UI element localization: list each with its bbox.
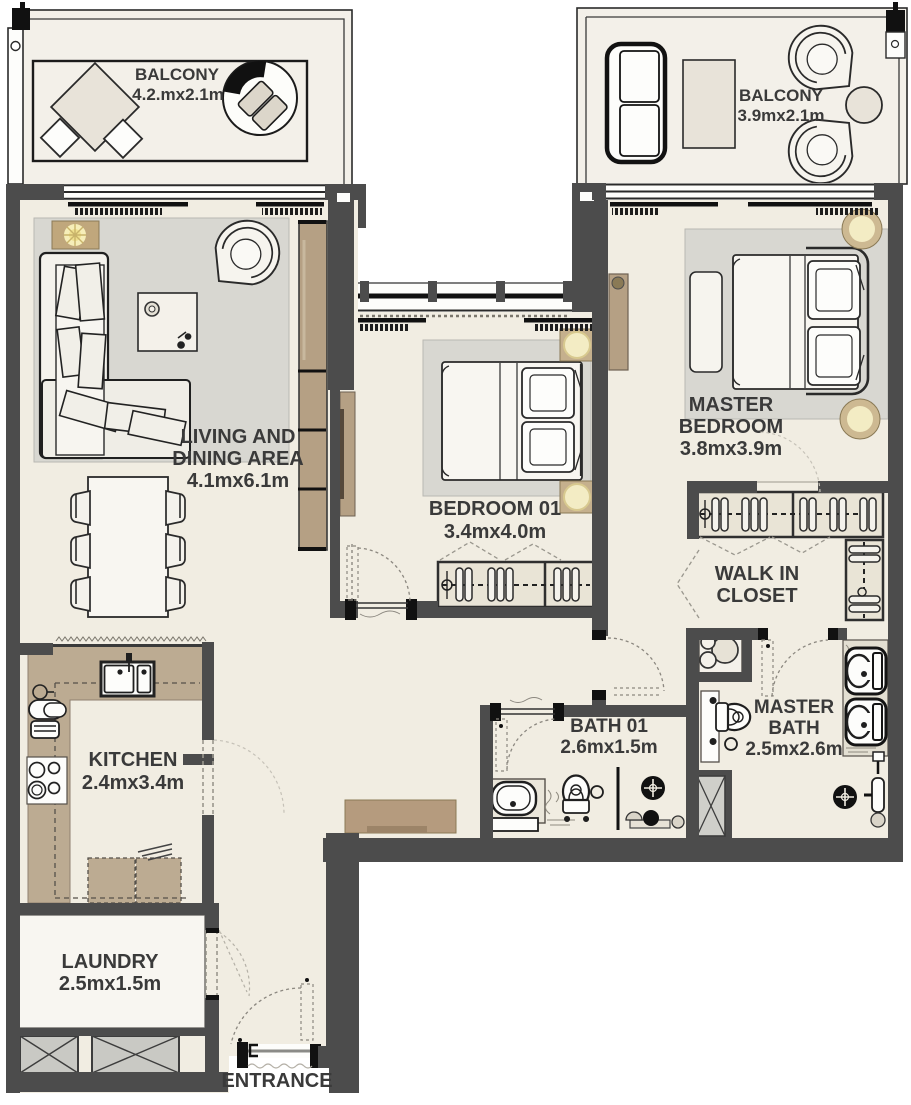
svg-text:3.9mx2.1m: 3.9mx2.1m bbox=[738, 106, 825, 125]
svg-text:WALK IN: WALK IN bbox=[715, 563, 799, 585]
svg-text:3.4mx4.0m: 3.4mx4.0m bbox=[444, 521, 546, 543]
svg-text:LIVING AND: LIVING AND bbox=[181, 426, 296, 448]
svg-text:KITCHEN: KITCHEN bbox=[89, 749, 178, 771]
svg-text:2.5mx2.6m: 2.5mx2.6m bbox=[745, 739, 842, 760]
svg-text:MASTER: MASTER bbox=[689, 394, 774, 416]
svg-text:BEDROOM 01: BEDROOM 01 bbox=[429, 498, 561, 520]
svg-text:LAUNDRY: LAUNDRY bbox=[61, 951, 159, 973]
svg-text:2.6mx1.5m: 2.6mx1.5m bbox=[560, 737, 657, 758]
svg-text:MASTER: MASTER bbox=[754, 697, 835, 718]
svg-text:2.5mx1.5m: 2.5mx1.5m bbox=[59, 973, 161, 995]
svg-text:BATH 01: BATH 01 bbox=[570, 716, 648, 737]
svg-text:4.2.mx2.1m: 4.2.mx2.1m bbox=[132, 85, 224, 104]
svg-text:3.8mx3.9m: 3.8mx3.9m bbox=[680, 438, 782, 460]
svg-text:DINING AREA: DINING AREA bbox=[172, 448, 303, 470]
svg-text:BEDROOM: BEDROOM bbox=[679, 416, 783, 438]
svg-text:CLOSET: CLOSET bbox=[716, 585, 797, 607]
svg-text:BALCONY: BALCONY bbox=[135, 65, 220, 84]
svg-text:4.1mx6.1m: 4.1mx6.1m bbox=[187, 470, 289, 492]
svg-text:BALCONY: BALCONY bbox=[739, 86, 824, 105]
svg-text:ENTRANCE: ENTRANCE bbox=[221, 1070, 332, 1092]
svg-text:2.4mx3.4m: 2.4mx3.4m bbox=[82, 772, 184, 794]
svg-text:BATH: BATH bbox=[768, 718, 819, 739]
